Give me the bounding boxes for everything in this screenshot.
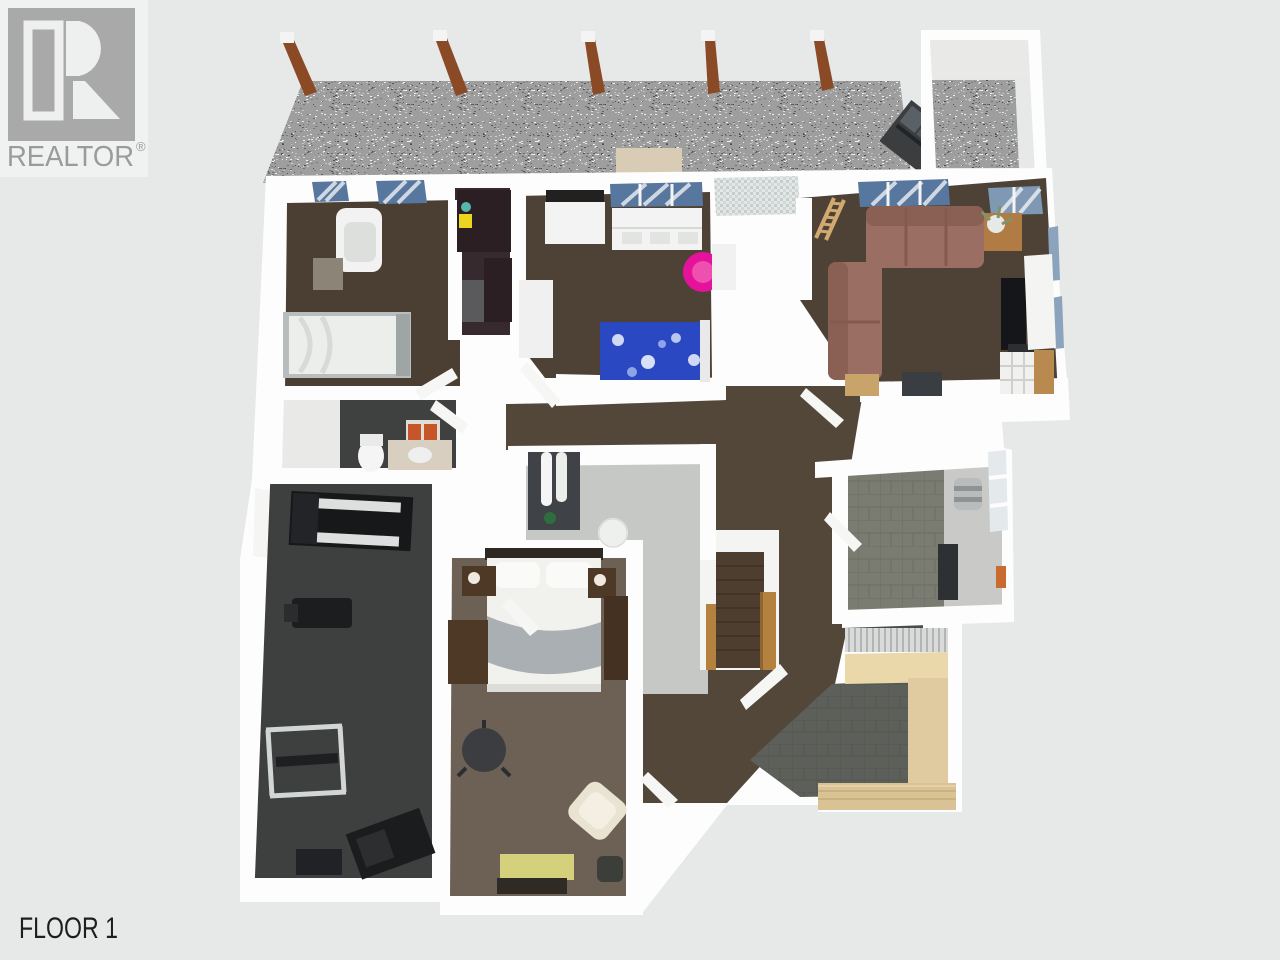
svg-text:REALTOR: REALTOR <box>7 141 134 173</box>
svg-text:FLOOR 1: FLOOR 1 <box>19 912 118 945</box>
svg-text:®: ® <box>136 139 146 154</box>
